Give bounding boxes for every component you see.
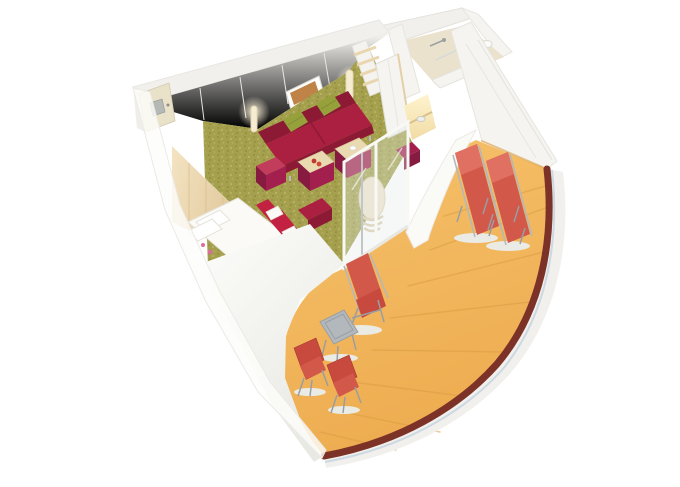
lounger-shadow (454, 233, 498, 243)
apple-decor (317, 162, 322, 167)
flower-decor (208, 250, 213, 255)
apple-decor (312, 159, 317, 164)
floorplan-render: 3D cutaway floor plan of a cruise-ship b… (0, 0, 680, 487)
flower-decor (201, 243, 205, 247)
floor-lamp-left (251, 106, 257, 132)
door-handle (167, 104, 170, 107)
shower-head-icon (442, 38, 446, 42)
cabin-floorplan-svg: 3D cutaway floor plan of a cruise-ship b… (0, 0, 680, 487)
cup-decor (350, 146, 356, 150)
vanity-sink (417, 117, 425, 122)
